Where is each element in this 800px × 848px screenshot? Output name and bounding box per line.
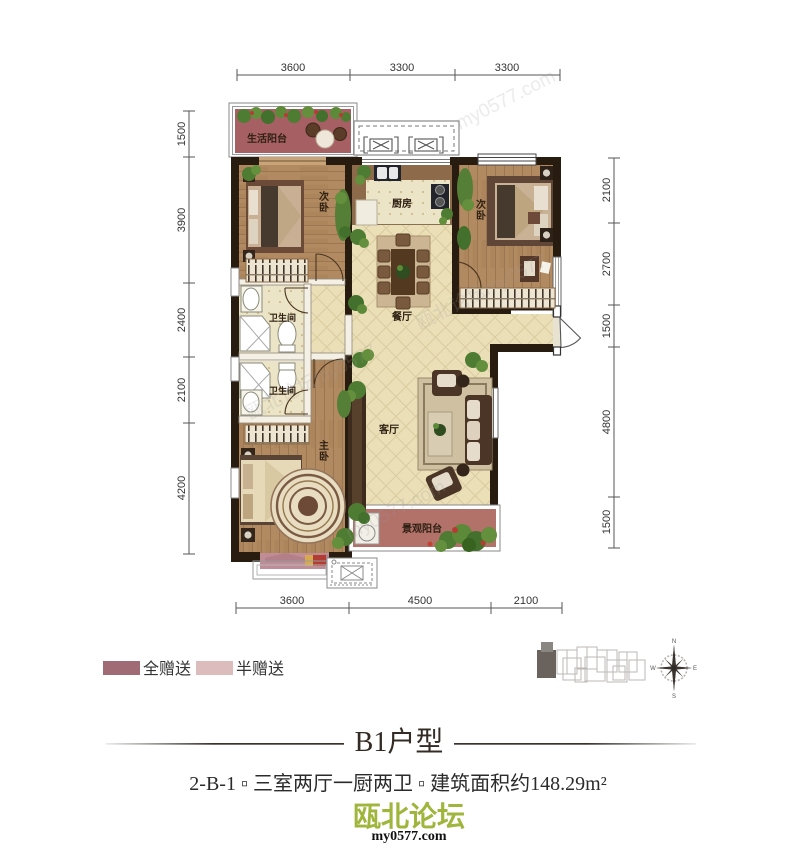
svg-text:2-B-1 ▫ 三室两厅一厨两卫 ▫ 建筑面积约148.29: 2-B-1 ▫ 三室两厅一厨两卫 ▫ 建筑面积约148.29m² [189, 772, 606, 795]
svg-text:2100: 2100 [176, 378, 188, 402]
svg-text:主卧: 主卧 [319, 439, 329, 463]
svg-text:4800: 4800 [601, 410, 613, 434]
svg-text:客厅: 客厅 [378, 423, 399, 436]
svg-text:2700: 2700 [601, 252, 613, 276]
svg-text:次卧: 次卧 [319, 190, 329, 214]
svg-text:N: N [672, 639, 676, 645]
svg-text:餐厅: 餐厅 [391, 310, 412, 323]
svg-text:4200: 4200 [176, 476, 188, 500]
svg-text:半赠送: 半赠送 [236, 660, 284, 678]
svg-text:瓯北论坛: 瓯北论坛 [353, 801, 465, 832]
svg-text:3600: 3600 [280, 595, 304, 607]
svg-text:E: E [693, 666, 697, 672]
svg-text:3300: 3300 [495, 62, 519, 74]
svg-text:卫生间: 卫生间 [269, 385, 296, 396]
svg-text:3900: 3900 [176, 208, 188, 232]
svg-text:生活阳台: 生活阳台 [247, 132, 287, 145]
svg-text:1500: 1500 [176, 122, 188, 146]
svg-text:1500: 1500 [601, 510, 613, 534]
svg-text:S: S [672, 694, 676, 700]
svg-text:全赠送: 全赠送 [143, 660, 191, 678]
svg-text:B1户型: B1户型 [355, 726, 444, 758]
svg-text:景观阳台: 景观阳台 [402, 522, 442, 535]
svg-text:my0577.com: my0577.com [371, 829, 446, 844]
svg-text:my0577.com: my0577.com [453, 66, 559, 134]
svg-text:厨房: 厨房 [392, 197, 412, 210]
svg-text:1500: 1500 [601, 314, 613, 338]
svg-text:次卧: 次卧 [476, 198, 486, 222]
svg-text:3300: 3300 [390, 62, 414, 74]
svg-text:卫生间: 卫生间 [269, 312, 296, 323]
svg-text:2100: 2100 [601, 178, 613, 202]
svg-text:4500: 4500 [408, 595, 432, 607]
svg-text:3600: 3600 [281, 62, 305, 74]
svg-text:W: W [650, 666, 656, 672]
svg-text:2400: 2400 [176, 308, 188, 332]
svg-text:2100: 2100 [514, 595, 538, 607]
